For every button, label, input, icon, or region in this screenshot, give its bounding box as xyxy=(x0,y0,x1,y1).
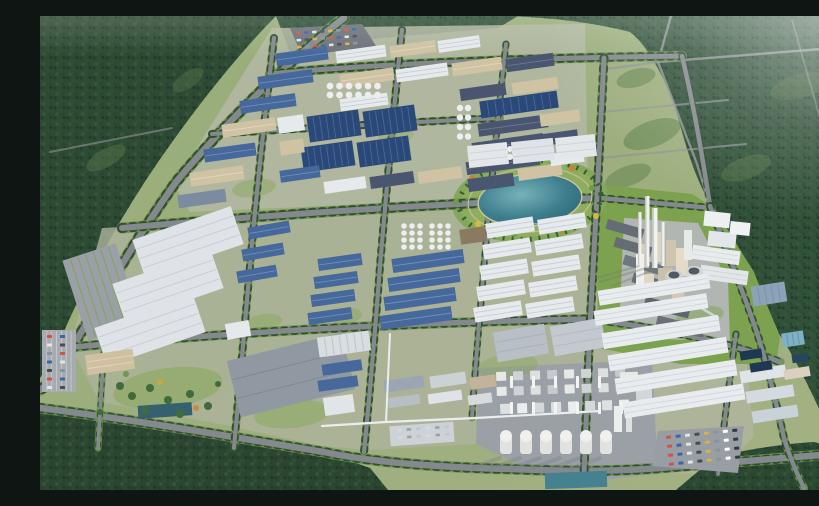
render-canvas xyxy=(40,16,819,490)
industrial-park-aerial-render xyxy=(40,16,819,490)
scene-layers xyxy=(40,16,819,490)
